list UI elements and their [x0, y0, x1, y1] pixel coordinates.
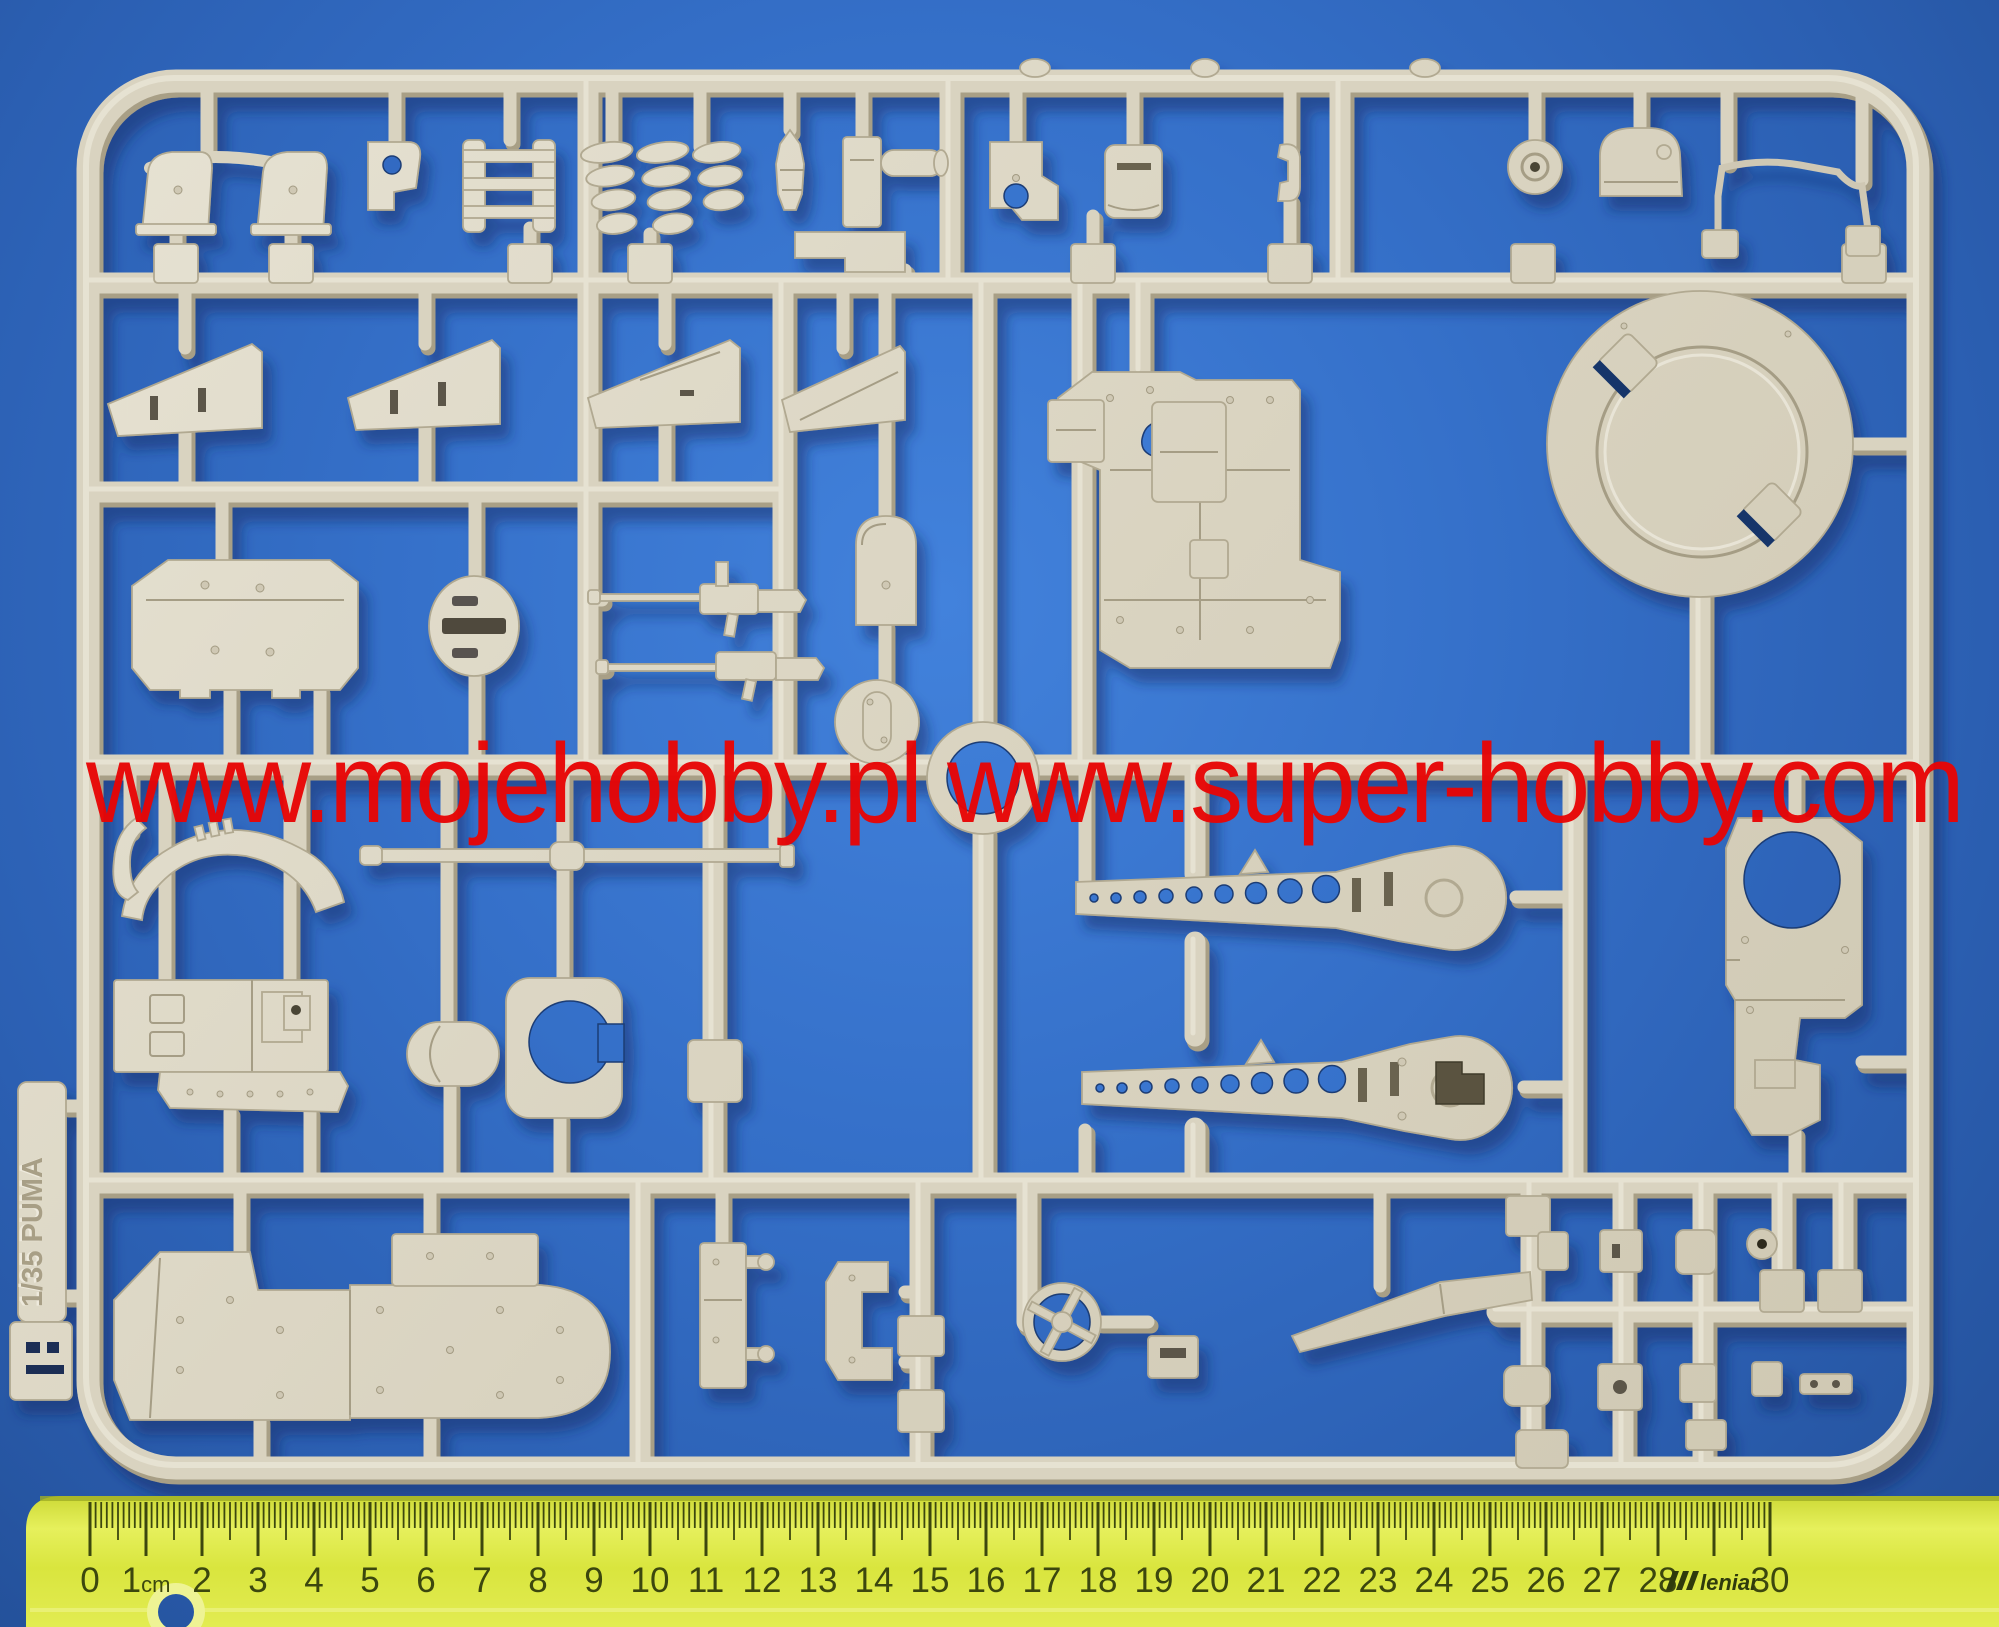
svg-text:19: 19 — [1135, 1561, 1174, 1600]
svg-text:8: 8 — [528, 1561, 547, 1600]
svg-text:13: 13 — [799, 1561, 838, 1600]
sprue-photo: 1/35 PUMA 1/35 PUMA 01cm2345678910111213… — [0, 0, 1999, 1627]
svg-text:5: 5 — [360, 1561, 379, 1600]
svg-text:4: 4 — [304, 1561, 323, 1600]
svg-text:25: 25 — [1471, 1561, 1510, 1600]
part-turret-ring-disc — [1547, 291, 1853, 597]
svg-text:14: 14 — [855, 1561, 894, 1600]
part-arched-door — [856, 516, 916, 625]
svg-text:17: 17 — [1023, 1561, 1062, 1600]
svg-text:11: 11 — [688, 1561, 724, 1600]
watermark-text: www.mojehobby.pl www.super-hobby.com — [85, 721, 1962, 846]
svg-text:27: 27 — [1583, 1561, 1622, 1600]
part-oval-hatch — [429, 576, 519, 676]
ruler-brand-text: leniar — [1700, 1570, 1760, 1595]
part-drum — [1105, 145, 1162, 218]
svg-text:6: 6 — [416, 1561, 435, 1600]
svg-text:22: 22 — [1303, 1561, 1342, 1600]
part-glacis-plate — [132, 560, 358, 698]
svg-text:23: 23 — [1359, 1561, 1398, 1600]
svg-text:0: 0 — [80, 1561, 99, 1600]
svg-text:10: 10 — [631, 1561, 670, 1600]
svg-text:18: 18 — [1079, 1561, 1118, 1600]
part-capsule — [407, 1022, 499, 1086]
svg-text:24: 24 — [1415, 1561, 1454, 1600]
sprue-tag-label: 1/35 PUMA — [17, 1157, 49, 1307]
part-track-link-assembly — [463, 140, 555, 232]
svg-text:12: 12 — [743, 1561, 782, 1600]
part-cap-cupola — [1600, 128, 1682, 196]
part-gun-shield — [506, 978, 624, 1118]
svg-text:21: 21 — [1247, 1561, 1286, 1600]
part-block-c — [688, 1040, 742, 1102]
photo-stage: 1/35 PUMA 1/35 PUMA 01cm2345678910111213… — [0, 0, 1999, 1627]
svg-text:2: 2 — [192, 1561, 211, 1600]
part-pulley — [1508, 140, 1562, 194]
svg-text:26: 26 — [1527, 1561, 1566, 1600]
svg-text:16: 16 — [967, 1561, 1006, 1600]
part-block-a — [1048, 400, 1104, 462]
svg-text:3: 3 — [248, 1561, 267, 1600]
sprue-tag: 1/35 PUMA 1/35 PUMA — [10, 1082, 72, 1400]
svg-text:20: 20 — [1191, 1561, 1230, 1600]
svg-text:9: 9 — [584, 1561, 603, 1600]
ruler: 01cm234567891011121314151617181920212223… — [26, 1496, 1999, 1627]
svg-text:7: 7 — [472, 1561, 491, 1600]
svg-text:15: 15 — [911, 1561, 950, 1600]
